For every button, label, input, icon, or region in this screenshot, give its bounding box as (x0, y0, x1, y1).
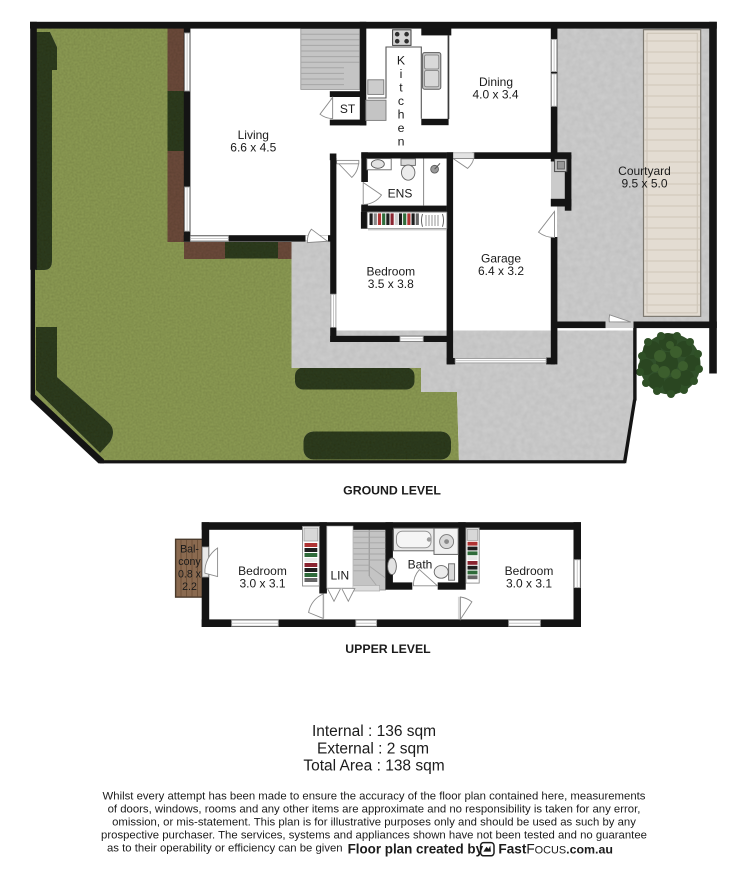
svg-text:i: i (400, 67, 403, 81)
svg-text:2.2: 2.2 (182, 581, 197, 593)
svg-text:Bal-: Bal- (180, 544, 199, 556)
svg-text:Total Area : 138 sqm: Total Area : 138 sqm (303, 757, 444, 774)
svg-text:0.8 x: 0.8 x (178, 569, 202, 581)
svg-text:3.5 x 3.8: 3.5 x 3.8 (368, 277, 414, 291)
svg-text:Whilst every attempt has been: Whilst every attempt has been made to en… (103, 791, 646, 803)
svg-text:FastFOCUS.com.au: FastFOCUS.com.au (498, 842, 613, 857)
svg-text:3.0 x 3.1: 3.0 x 3.1 (506, 577, 552, 591)
svg-text:ENS: ENS (388, 187, 413, 201)
svg-text:6.4 x 3.2: 6.4 x 3.2 (478, 264, 524, 278)
svg-text:K: K (397, 54, 406, 68)
svg-text:LIN: LIN (330, 569, 349, 583)
svg-text:Floor plan created by: Floor plan created by (348, 842, 484, 857)
svg-text:GROUND LEVEL: GROUND LEVEL (343, 483, 441, 497)
svg-text:External : 2 sqm: External : 2 sqm (317, 740, 429, 757)
svg-text:6.6 x 4.5: 6.6 x 4.5 (230, 141, 276, 155)
svg-text:3.0 x 3.1: 3.0 x 3.1 (239, 577, 285, 591)
svg-text:as to their operability or eff: as to their operability or efficiency ca… (107, 843, 343, 855)
svg-text:ST: ST (340, 102, 356, 116)
svg-text:4.0 x 3.4: 4.0 x 3.4 (472, 87, 518, 101)
svg-text:Internal : 136 sqm: Internal : 136 sqm (312, 723, 436, 740)
svg-text:prospective purchaser. The ser: prospective purchaser. The services, sys… (101, 830, 647, 842)
svg-text:e: e (398, 121, 405, 135)
svg-text:UPPER LEVEL: UPPER LEVEL (345, 642, 431, 656)
svg-text:t: t (399, 81, 403, 95)
svg-text:omission, or mis-statement. Th: omission, or mis-statement. This plan is… (112, 817, 636, 829)
svg-text:c: c (398, 94, 404, 108)
svg-text:9.5 x 5.0: 9.5 x 5.0 (621, 177, 667, 191)
svg-text:n: n (398, 135, 405, 149)
svg-text:Bath: Bath (408, 558, 433, 572)
svg-text:cony: cony (178, 556, 201, 568)
svg-text:of doors, windows, rooms and a: of doors, windows, rooms and any other i… (108, 804, 641, 816)
svg-text:h: h (398, 108, 405, 122)
